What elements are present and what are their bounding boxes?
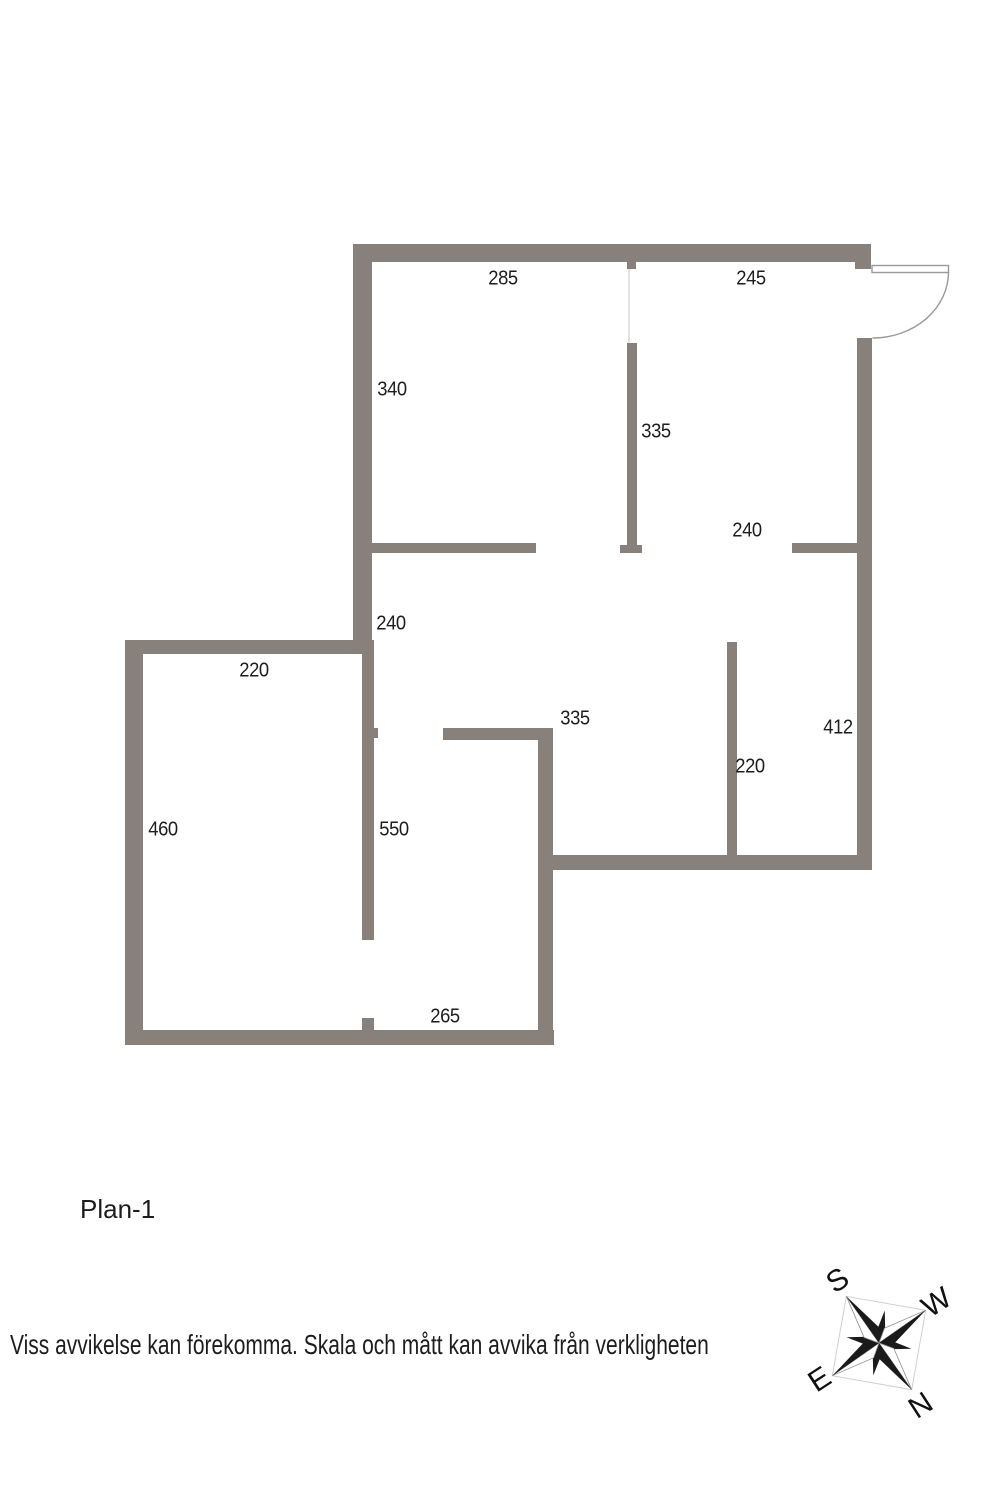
plan-title: Plan-1 bbox=[80, 1194, 155, 1225]
measurement-label: 240 bbox=[376, 613, 406, 636]
measurement-label: 412 bbox=[823, 717, 853, 740]
wall-top bbox=[353, 244, 871, 262]
measurement-label: 220 bbox=[735, 756, 765, 779]
floorplan-page: 285 245 340 335 240 240 220 335 412 220 … bbox=[0, 0, 992, 1488]
measurement-label: 550 bbox=[379, 819, 409, 842]
opening-guide-line bbox=[628, 269, 630, 343]
wall-step-vertical bbox=[538, 728, 553, 1045]
wall-interior-550 bbox=[362, 654, 374, 940]
wall-interior-220-right bbox=[727, 642, 737, 855]
measurement-label: 240 bbox=[732, 520, 762, 543]
measurement-label: 340 bbox=[377, 379, 407, 402]
wall-interior-240-right bbox=[792, 543, 857, 553]
disclaimer-text: Viss avvikelse kan förekomma. Skala och … bbox=[10, 1328, 709, 1362]
wall-interior-mid-left bbox=[372, 543, 536, 553]
wall-left-room-bottom bbox=[125, 1030, 554, 1045]
wall-notch-top bbox=[627, 262, 636, 269]
wall-top-right-step bbox=[855, 262, 871, 269]
wall-left-upper bbox=[353, 244, 372, 654]
wall-bottom-stub bbox=[362, 1018, 374, 1030]
measurement-label: 220 bbox=[239, 660, 269, 683]
wall-door-jamb bbox=[362, 728, 378, 738]
wall-interior-335-upper bbox=[627, 343, 637, 545]
measurement-label: 335 bbox=[641, 421, 671, 444]
wall-bottom-right-section bbox=[545, 855, 872, 870]
wall-left-room-left bbox=[125, 640, 143, 1045]
measurement-label: 460 bbox=[148, 819, 178, 842]
measurement-label: 265 bbox=[430, 1006, 460, 1029]
wall-interior-335-cap bbox=[620, 545, 642, 553]
wall-interior-335-lower bbox=[443, 728, 546, 740]
measurement-label: 335 bbox=[560, 708, 590, 731]
measurement-label: 285 bbox=[488, 268, 518, 291]
door-swing-arc bbox=[873, 272, 949, 338]
door-leaf bbox=[872, 266, 949, 273]
wall-right bbox=[857, 338, 872, 870]
measurement-label: 245 bbox=[736, 268, 766, 291]
floorplan-drawing bbox=[0, 0, 992, 1488]
wall-left-room-top bbox=[125, 640, 374, 654]
